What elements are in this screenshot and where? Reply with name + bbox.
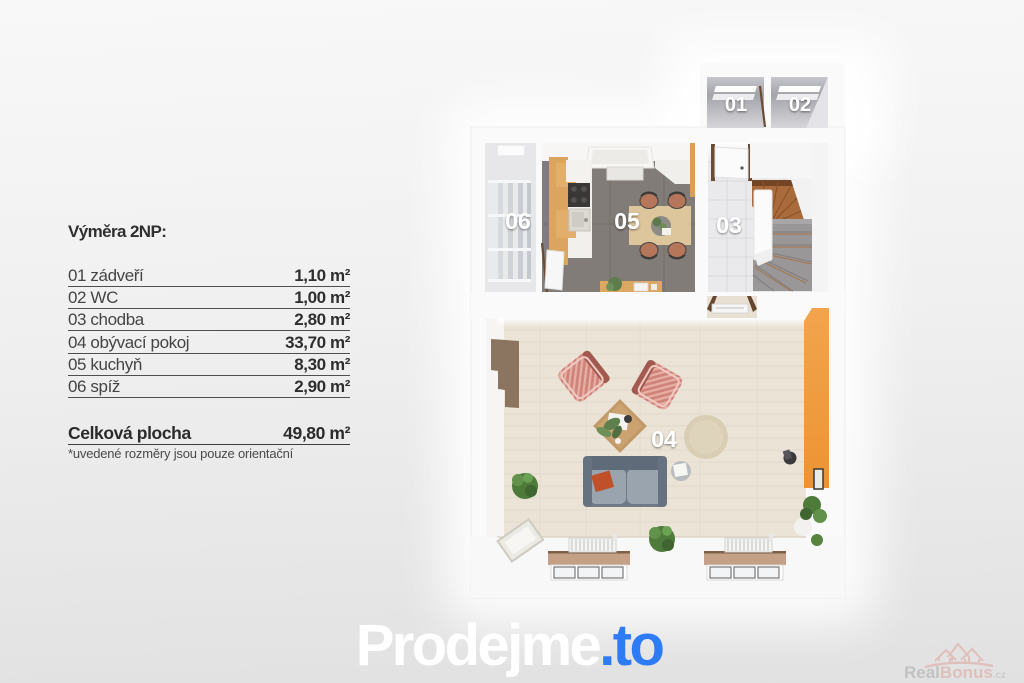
svg-text:06: 06: [505, 208, 531, 234]
svg-text:01: 01: [725, 94, 747, 116]
svg-text:03: 03: [716, 212, 742, 238]
svg-text:02: 02: [789, 94, 811, 116]
svg-text:04: 04: [651, 426, 677, 452]
svg-text:05: 05: [614, 208, 640, 234]
svg-text:RealBonus.cz: RealBonus.cz: [904, 663, 1006, 681]
